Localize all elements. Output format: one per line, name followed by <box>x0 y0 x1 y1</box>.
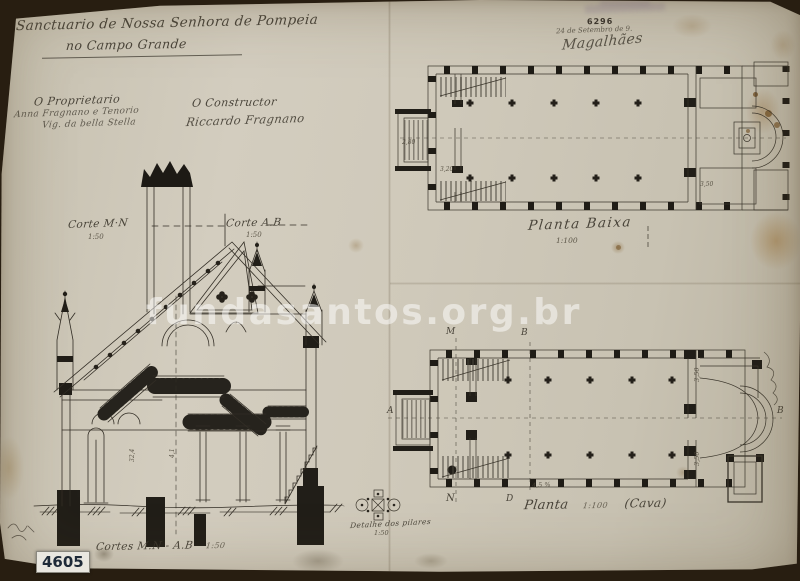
pillar-detail-drawing <box>356 490 400 520</box>
marker-b-right: B <box>777 407 784 416</box>
corte-ab-scale: 1:50 <box>246 232 262 239</box>
pillar-detail-scale: 1:50 <box>374 530 389 537</box>
lower-plan-drawing <box>388 338 782 502</box>
corte-ab-label: Corte A.B <box>225 218 282 229</box>
lower-dim-c: 4,5 % <box>532 482 551 489</box>
section-dim-a: 32,4 <box>130 449 136 462</box>
cross-section-drawing <box>8 161 344 547</box>
archive-number-label: 4605 <box>36 551 90 573</box>
watermark-text: fundasantos.org.br <box>146 292 582 333</box>
upper-dim-c: 3,50 <box>700 182 713 188</box>
proprietor-label: O Proprietario <box>33 93 120 107</box>
drawing-layer <box>0 0 800 581</box>
planta-cava-scale: 1:100 <box>582 501 608 510</box>
blueprint-paper: Sanctuario de Nossa Senhora de Pompeia n… <box>0 0 800 581</box>
corte-mn-scale: 1:50 <box>88 234 104 241</box>
planta-baixa-scale: 1:100 <box>556 237 578 245</box>
constructor-label: O Constructor <box>191 96 277 109</box>
upper-dim-a: 2,80 <box>402 140 415 146</box>
upper-dim-b: 3,20 <box>440 167 453 173</box>
corte-mn-label: Corte M·N <box>67 218 128 231</box>
section-dim-b: 4,1 <box>170 448 176 458</box>
photo-frame: Sanctuario de Nossa Senhora de Pompeia n… <box>0 0 800 581</box>
planta-cava-suffix: (Cava) <box>624 496 668 511</box>
marker-n: N <box>446 494 455 504</box>
drawing-title-line2: no Campo Grande <box>65 38 187 53</box>
planta-cava-text: Planta <box>523 497 569 513</box>
section-caption-scale: 1:50 <box>205 541 226 550</box>
marker-a: A <box>387 407 394 416</box>
section-caption-text: Cortes M.N - A.B <box>95 539 194 553</box>
lower-dim-b: 3,50 <box>694 452 701 466</box>
planta-cava-caption: Planta 1:100 (Cava) <box>523 497 667 513</box>
lower-dim-a: 3,50 <box>694 368 701 382</box>
marker-d: D <box>506 495 513 504</box>
